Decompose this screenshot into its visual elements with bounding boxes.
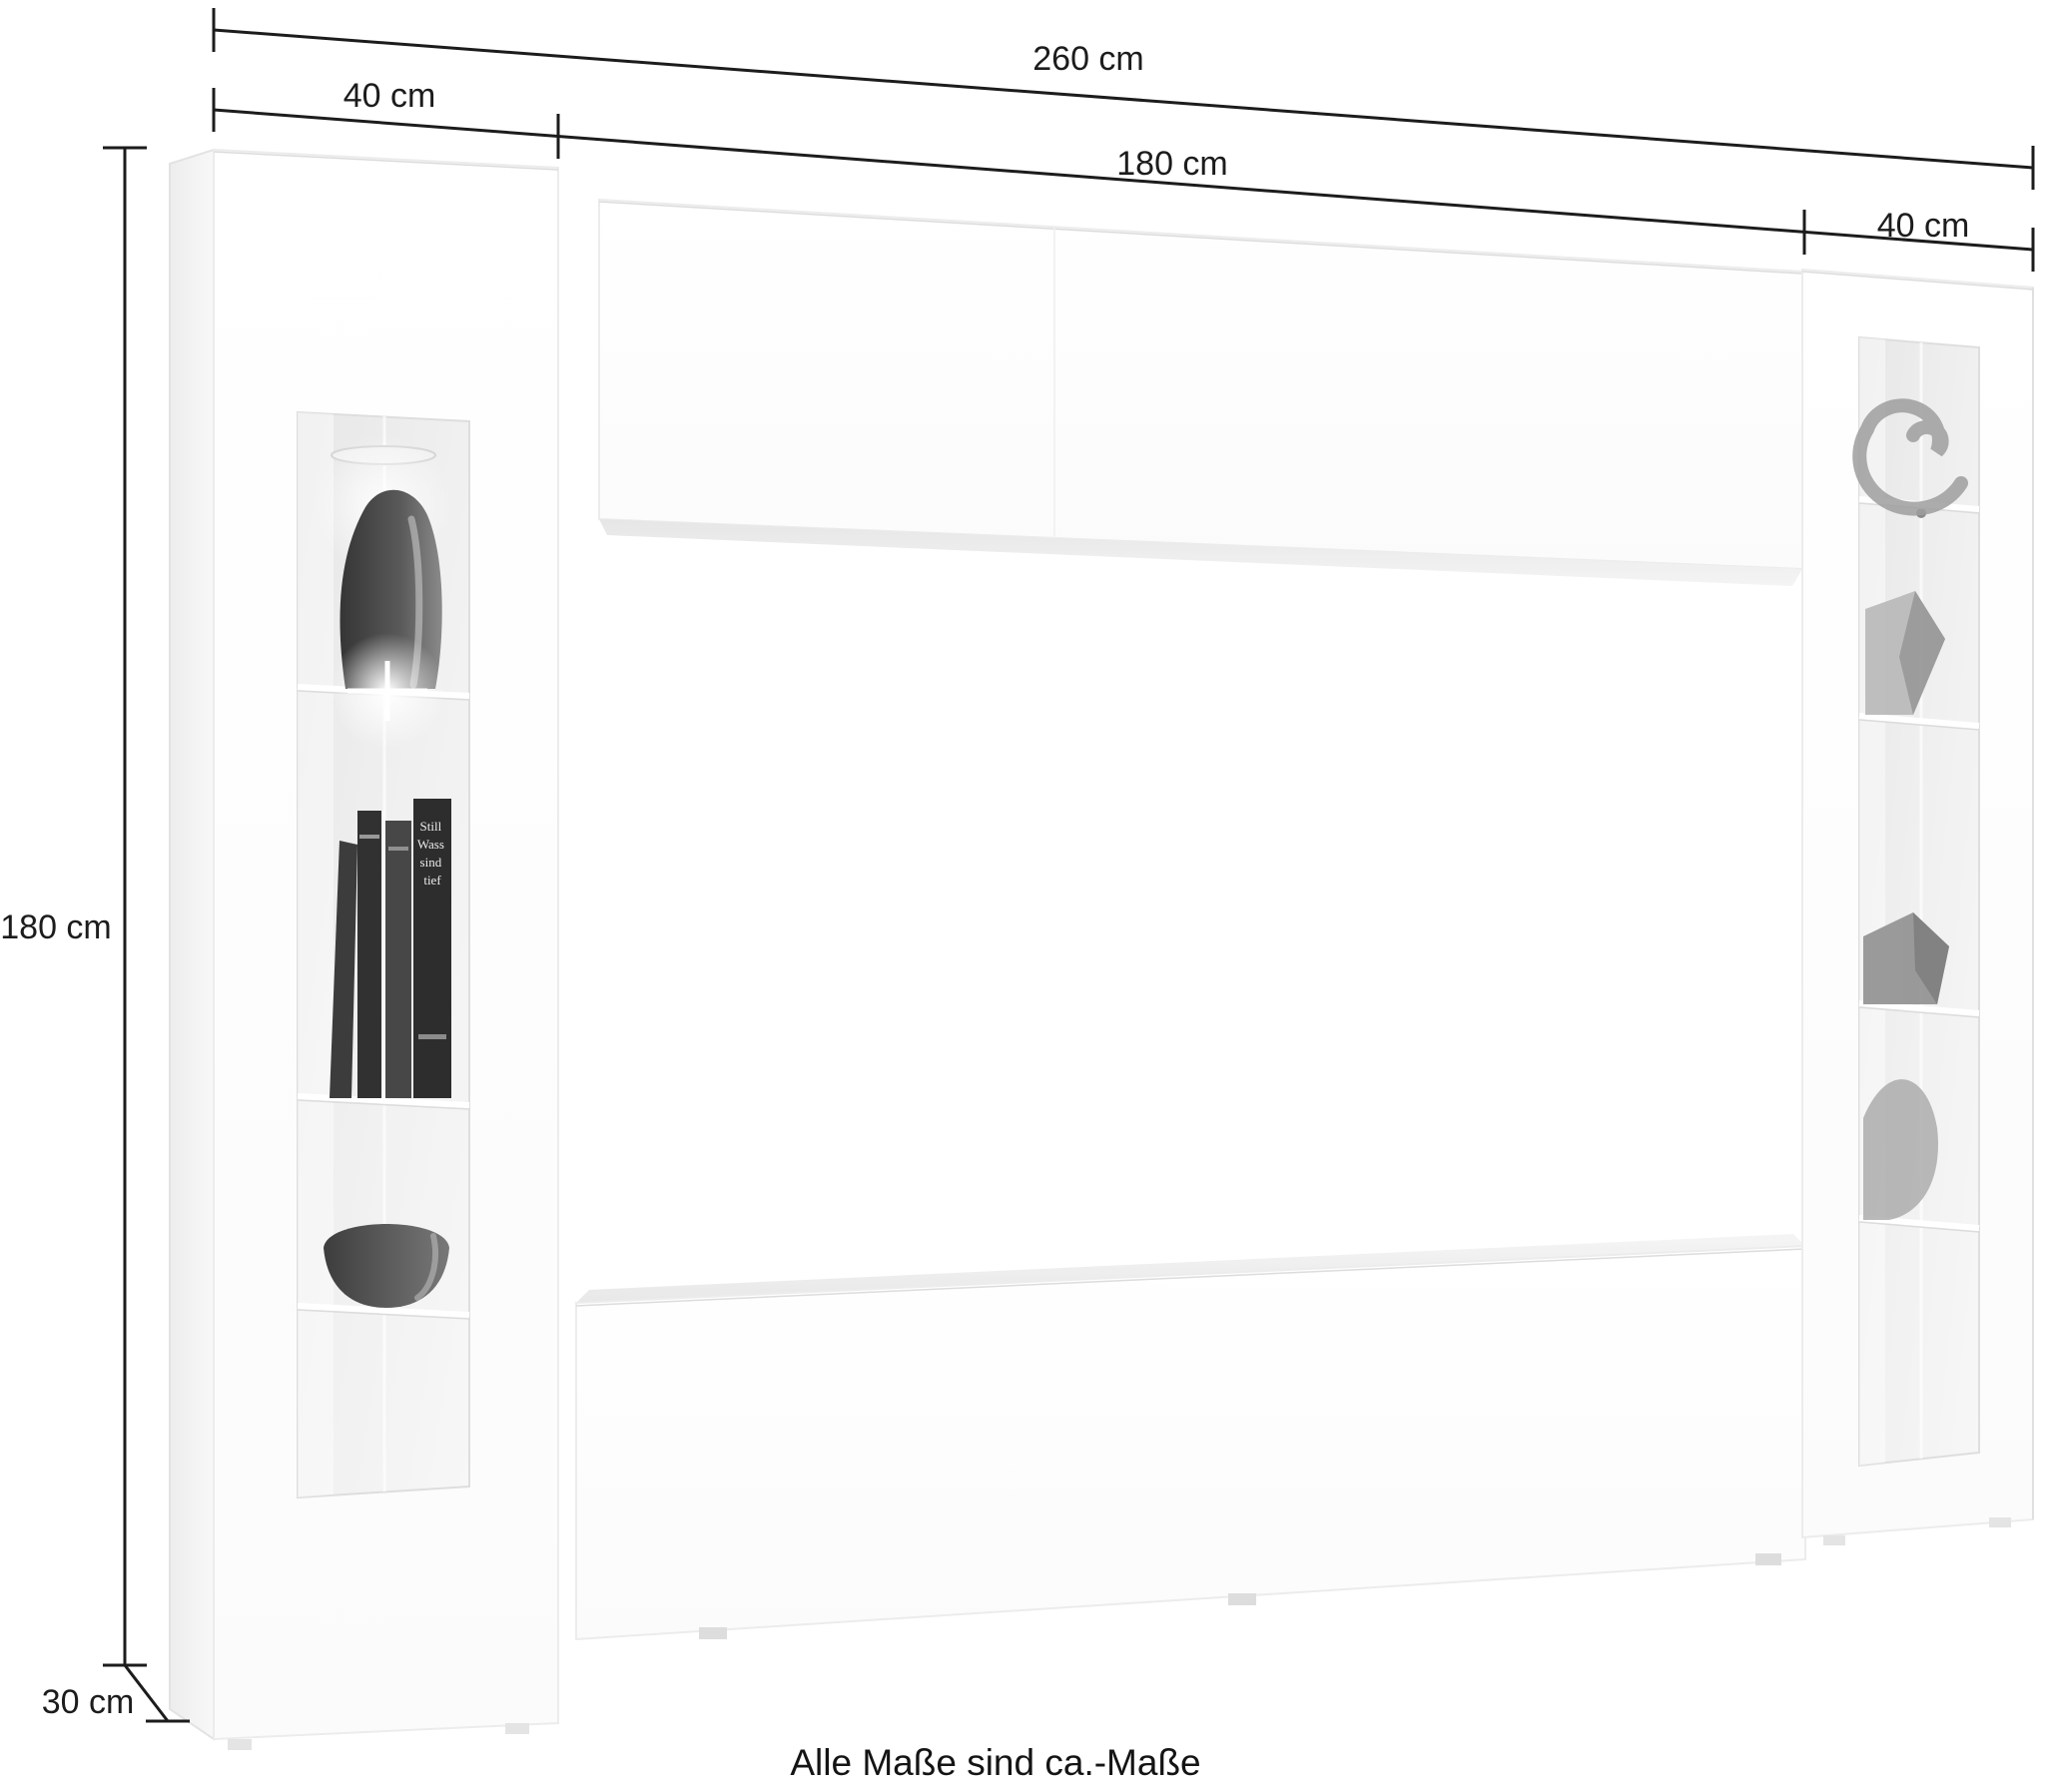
middle-width-label: 180 cm xyxy=(1116,145,1228,183)
hanging-top-cabinet xyxy=(599,200,1802,586)
bench-foot xyxy=(1228,1593,1256,1605)
bench-foot xyxy=(699,1627,727,1639)
led-sparkle xyxy=(330,633,445,749)
left-display-cabinet: Still Wass sind tief xyxy=(170,150,558,1750)
tv-bench xyxy=(576,1234,1805,1639)
cabinet-foot xyxy=(228,1739,252,1750)
height-label: 180 cm xyxy=(0,908,112,946)
right-display-cabinet xyxy=(1802,270,2033,1545)
bench-foot xyxy=(1755,1553,1781,1565)
tv-bench-front xyxy=(576,1246,1805,1639)
footnote: Alle Maße sind ca.-Maße xyxy=(790,1742,1200,1783)
dimension-depth: 30 cm xyxy=(42,1665,190,1721)
cabinet-foot xyxy=(1823,1535,1845,1545)
left-cabinet-side-panel xyxy=(170,150,214,1739)
glass-reflection xyxy=(298,412,334,1497)
product-dimension-diagram: Still Wass sind tief xyxy=(0,0,2045,1792)
right-width-label: 40 cm xyxy=(1877,207,1970,245)
cabinet-foot xyxy=(505,1723,529,1734)
glass-reflection xyxy=(1859,337,1885,1466)
books-decor: Still Wass sind tief xyxy=(330,799,451,1098)
total-width-label: 260 cm xyxy=(1032,40,1144,78)
hanging-cabinet-front xyxy=(599,200,1802,569)
dimension-height: 180 cm xyxy=(0,148,147,1665)
depth-label: 30 cm xyxy=(42,1683,135,1721)
left-width-label: 40 cm xyxy=(343,77,436,115)
cabinet-foot xyxy=(1989,1517,2011,1527)
